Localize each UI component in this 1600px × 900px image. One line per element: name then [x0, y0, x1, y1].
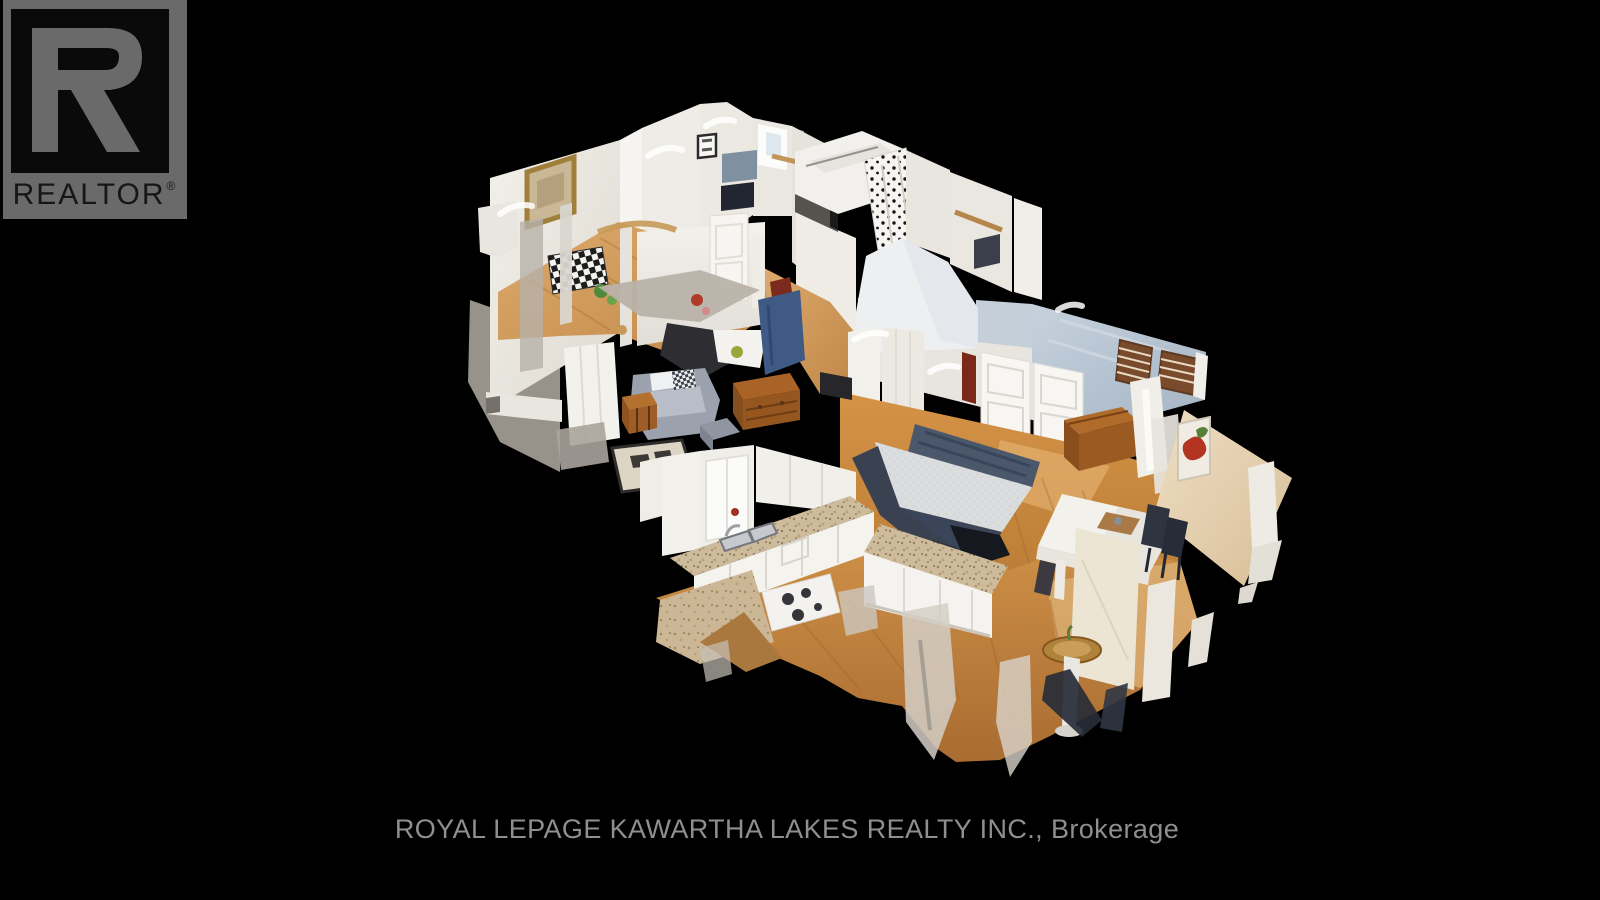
realtor-logo: REALTOR®: [3, 0, 187, 219]
red-door-item: [962, 352, 976, 404]
realtor-text: REALTOR: [13, 180, 166, 210]
louvered-shutter: [1158, 351, 1198, 395]
screenshot-stage: REALTOR® ROYAL LEPAGE KAWARTHA LAKES REA…: [0, 0, 1600, 900]
denim-fabric: [758, 290, 805, 375]
dollhouse-3d-view: [0, 0, 1600, 900]
wooden-dresser: [733, 373, 800, 430]
tv-screen: [721, 182, 754, 211]
storage-trunk: [622, 392, 657, 434]
realtor-r-icon: [11, 9, 169, 173]
registered-symbol: ®: [167, 180, 178, 192]
brokerage-watermark: ROYAL LEPAGE KAWARTHA LAKES REALTY INC.,…: [0, 814, 1574, 845]
realtor-wordmark: REALTOR®: [3, 171, 187, 219]
realtor-logo-square: [11, 9, 169, 173]
red-floral-art: [1178, 417, 1210, 481]
gray-blue-art: [722, 150, 757, 183]
small-picture-frame: [698, 134, 716, 158]
